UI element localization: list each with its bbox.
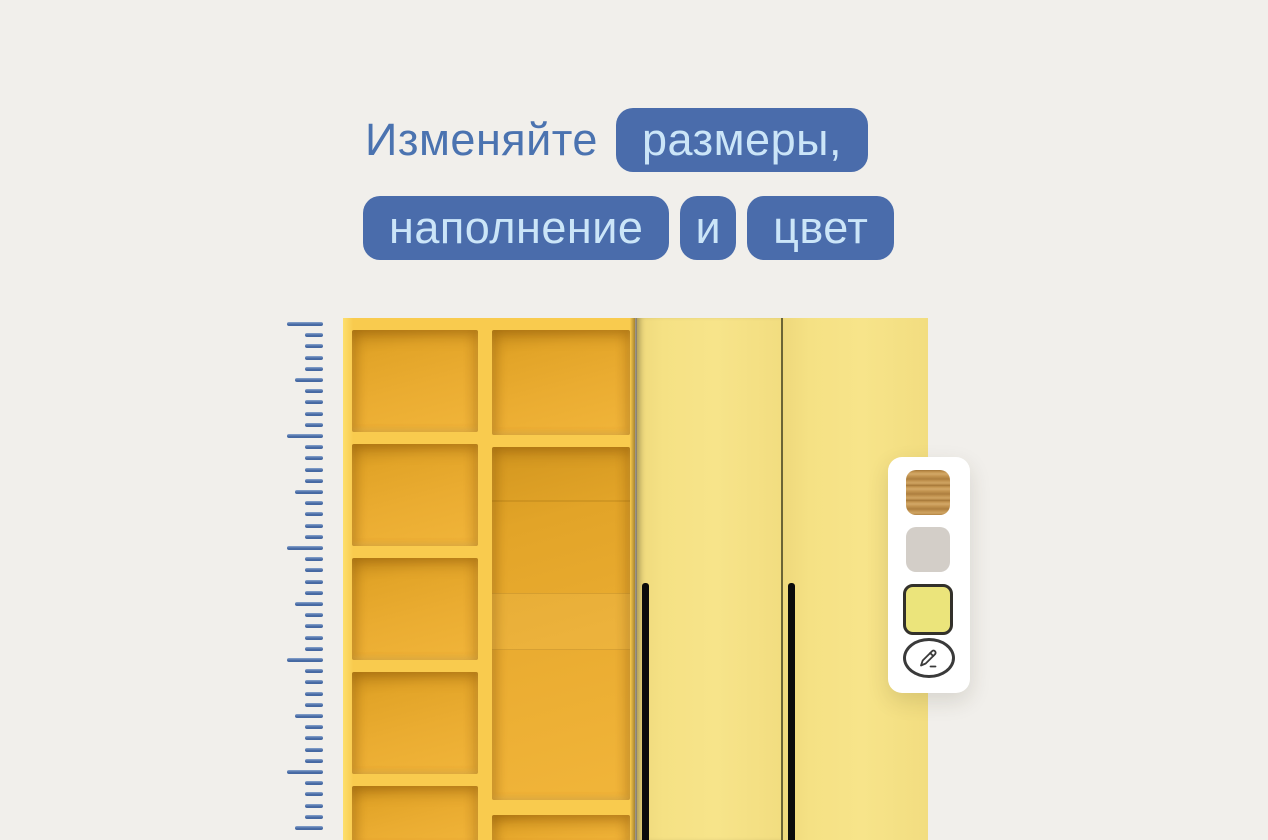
ruler-tick [305, 804, 323, 808]
ruler-tick [305, 647, 323, 651]
ruler-tick [305, 736, 323, 740]
ruler-tick [305, 815, 323, 819]
ruler-tick [305, 412, 323, 416]
shelf-cell [352, 672, 478, 774]
headline: Изменяйте размеры, наполнение и цвет [363, 108, 894, 260]
ruler-tick [287, 546, 323, 550]
door-handle-right [788, 583, 795, 840]
headline-plain-text: Изменяйте [365, 108, 616, 172]
ruler-tick [305, 400, 323, 404]
edit-color-button[interactable] [903, 638, 955, 678]
ruler-tick [305, 356, 323, 360]
ruler-tick [305, 669, 323, 673]
ruler-tick [305, 725, 323, 729]
ruler-tick [287, 322, 323, 326]
section-junction-shadow [630, 318, 637, 840]
ruler-tick [305, 680, 323, 684]
ruler-tick [305, 781, 323, 785]
ruler-tick [305, 624, 323, 628]
ruler-tick [305, 524, 323, 528]
ruler-tick [295, 826, 323, 830]
ruler-tick [305, 468, 323, 472]
ruler-tick [295, 714, 323, 718]
ruler-tick [287, 770, 323, 774]
edit-pencil-icon [916, 646, 942, 670]
wardrobe-door-left [637, 318, 781, 840]
ruler-tick [305, 501, 323, 505]
ruler-tick [295, 602, 323, 606]
ruler-tick [305, 636, 323, 640]
ruler-tick [305, 445, 323, 449]
ruler-tick [287, 434, 323, 438]
ruler-tick [305, 591, 323, 595]
ruler-tick [305, 748, 323, 752]
ruler-tick [305, 692, 323, 696]
color-swatch-yellow-selected[interactable] [903, 584, 953, 635]
shelf-cell [492, 815, 630, 840]
headline-line-1: Изменяйте размеры, [365, 108, 894, 172]
shelf-cell [352, 330, 478, 432]
wardrobe-preview [343, 318, 928, 840]
ruler-tick [305, 792, 323, 796]
drawer-compartment [492, 447, 630, 800]
headline-badge-color: цвет [747, 196, 894, 260]
color-picker-panel [888, 457, 970, 693]
door-handle-left [642, 583, 649, 840]
ruler-tick [305, 389, 323, 393]
color-swatch-light-gray[interactable] [906, 527, 950, 572]
ruler-tick [305, 479, 323, 483]
shelf-cell [352, 786, 478, 840]
ruler-tick [305, 613, 323, 617]
ruler-tick [295, 490, 323, 494]
color-swatch-oak-wood[interactable] [906, 470, 950, 515]
ruler-tick [305, 568, 323, 572]
drawer-front [492, 593, 630, 650]
shelf-cell [352, 444, 478, 546]
ruler-tick [287, 658, 323, 662]
ruler-tick [305, 333, 323, 337]
ruler-tick [305, 367, 323, 371]
drawer-seam [492, 500, 630, 502]
ruler-tick [305, 535, 323, 539]
headline-line-2: наполнение и цвет [363, 196, 894, 260]
ruler-tick [305, 557, 323, 561]
headline-badge-sizes: размеры, [616, 108, 868, 172]
ruler [287, 322, 323, 840]
ruler-tick [305, 759, 323, 763]
ruler-tick [305, 580, 323, 584]
ruler-tick [305, 423, 323, 427]
headline-badge-filling: наполнение [363, 196, 669, 260]
shelf-cell [492, 330, 630, 435]
ruler-tick [305, 703, 323, 707]
shelf-cell [352, 558, 478, 660]
ruler-tick [305, 456, 323, 460]
ruler-tick [305, 512, 323, 516]
headline-badge-and: и [680, 196, 736, 260]
ruler-tick [305, 344, 323, 348]
ruler-tick [295, 378, 323, 382]
promo-canvas: Изменяйте размеры, наполнение и цвет [0, 0, 1268, 840]
wardrobe-open-section [343, 318, 635, 840]
